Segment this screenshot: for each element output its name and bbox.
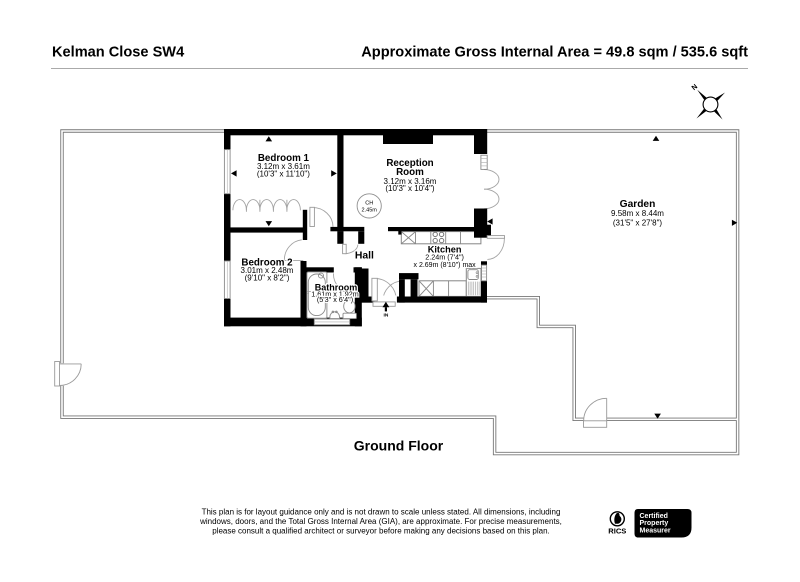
svg-text:CH: CH (365, 200, 373, 206)
svg-text:Approximate Gross Internal Are: Approximate Gross Internal Area = 49.8 s… (361, 45, 748, 61)
svg-text:Property: Property (640, 520, 669, 527)
svg-text:(10'3" x 11'10"): (10'3" x 11'10") (257, 169, 310, 178)
svg-text:please consult a qualified arc: please consult a qualified architect or … (212, 527, 550, 536)
svg-text:Kelman Close SW4: Kelman Close SW4 (52, 45, 185, 61)
svg-text:2.24m (7'4"): 2.24m (7'4") (425, 253, 464, 262)
svg-text:Hall: Hall (355, 250, 374, 261)
svg-text:windows, doors, and the Total: windows, doors, and the Total Gross Inte… (199, 517, 562, 526)
svg-text:This plan is for layout guidan: This plan is for layout guidance only an… (202, 508, 561, 517)
svg-text:x 2.69m (8'10") max: x 2.69m (8'10") max (414, 262, 477, 269)
svg-text:9.58m x 8.44m: 9.58m x 8.44m (611, 209, 664, 218)
svg-text:Measurer: Measurer (640, 527, 671, 534)
svg-text:Ground Floor: Ground Floor (354, 438, 444, 454)
svg-text:(9'10" x 8'2"): (9'10" x 8'2") (245, 274, 290, 283)
svg-text:(31'5" x 27'8"): (31'5" x 27'8") (613, 218, 663, 227)
svg-text:Certified: Certified (640, 513, 668, 520)
svg-text:RICS: RICS (608, 527, 626, 536)
svg-text:2.45m: 2.45m (362, 208, 378, 214)
svg-text:(5'3" x 6'4"): (5'3" x 6'4") (317, 295, 353, 304)
svg-text:(10'3" x 10'4"): (10'3" x 10'4") (385, 184, 435, 193)
svg-text:IN: IN (383, 313, 388, 319)
